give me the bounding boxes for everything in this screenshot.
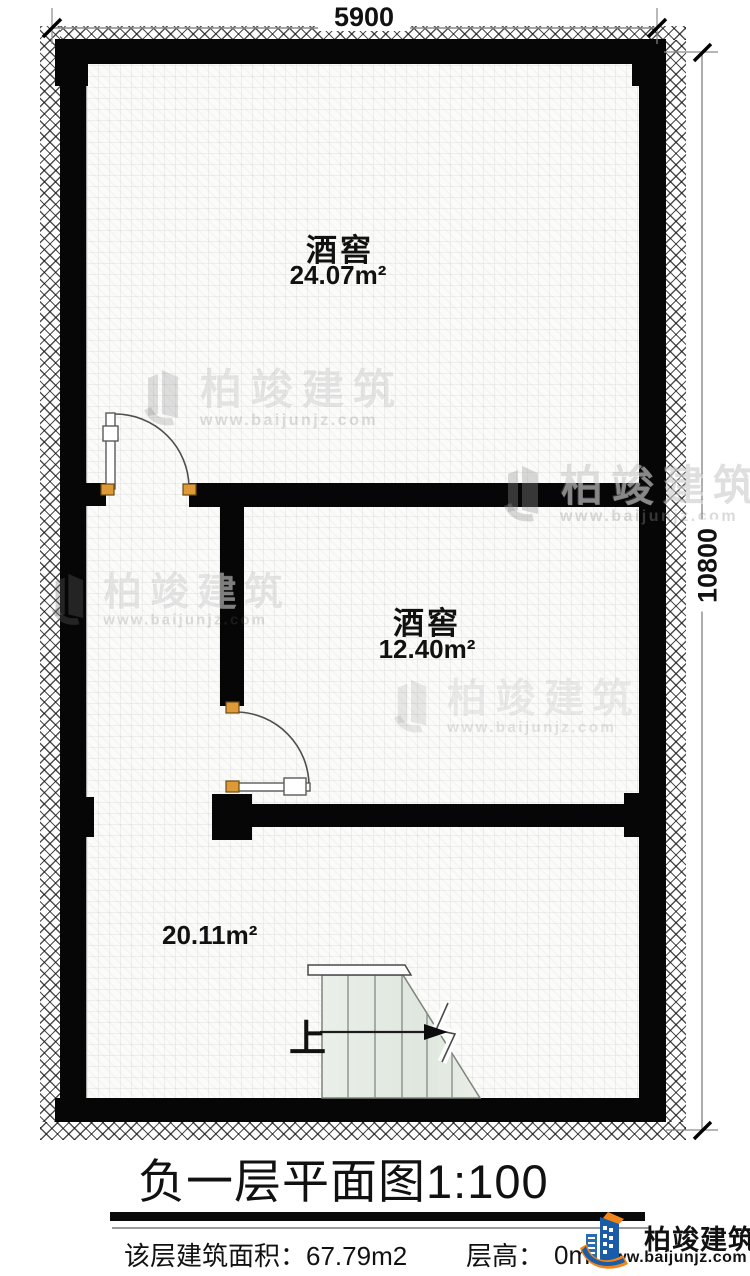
plan-title-text: 负一层平面图 <box>138 1155 426 1208</box>
wall-lower-pier-right <box>624 793 641 837</box>
room3-area: 20.11m² <box>162 920 282 951</box>
title-rule-thick <box>110 1212 645 1221</box>
hatch-right <box>666 40 686 1140</box>
wall-lower-pier-left <box>86 797 94 837</box>
stairs-up-label: 上 <box>289 1008 326 1062</box>
wall-middle-stub <box>86 483 106 506</box>
dimension-right-label: 10800 <box>695 520 722 612</box>
floor-area-value: 67.79m2 <box>306 1241 407 1271</box>
plan-title-scale: 1:100 <box>426 1155 549 1208</box>
hatch-bottom <box>40 1122 686 1140</box>
wall-top <box>55 39 665 64</box>
floor-plan-page: { "dimensions": { "top": "5900", "right"… <box>0 0 750 1276</box>
wall-lower-main <box>252 804 626 827</box>
floor-height-info: 层高： <box>466 1236 544 1273</box>
floor-area-label: 该层建筑面积： <box>124 1241 306 1271</box>
title-rule-thin <box>112 1227 650 1229</box>
hatch-left <box>40 26 60 1140</box>
wall-right <box>639 39 666 1122</box>
room2-area: 12.40m² <box>357 634 497 665</box>
wall-left <box>60 39 86 1122</box>
company-logo-icon <box>578 1210 644 1274</box>
room1-area: 24.07m² <box>268 260 408 291</box>
plan-title: 负一层平面图1:100 <box>138 1143 549 1212</box>
wall-interior-vertical <box>220 507 244 706</box>
floor-height-label: 层高： <box>466 1241 544 1271</box>
wall-lower-pier <box>212 794 252 840</box>
wall-middle-main <box>189 483 641 507</box>
wall-bottom <box>55 1098 666 1122</box>
floor-area-info: 该层建筑面积：67.79m2 <box>124 1236 407 1273</box>
dimension-top-label: 5900 <box>318 4 410 31</box>
